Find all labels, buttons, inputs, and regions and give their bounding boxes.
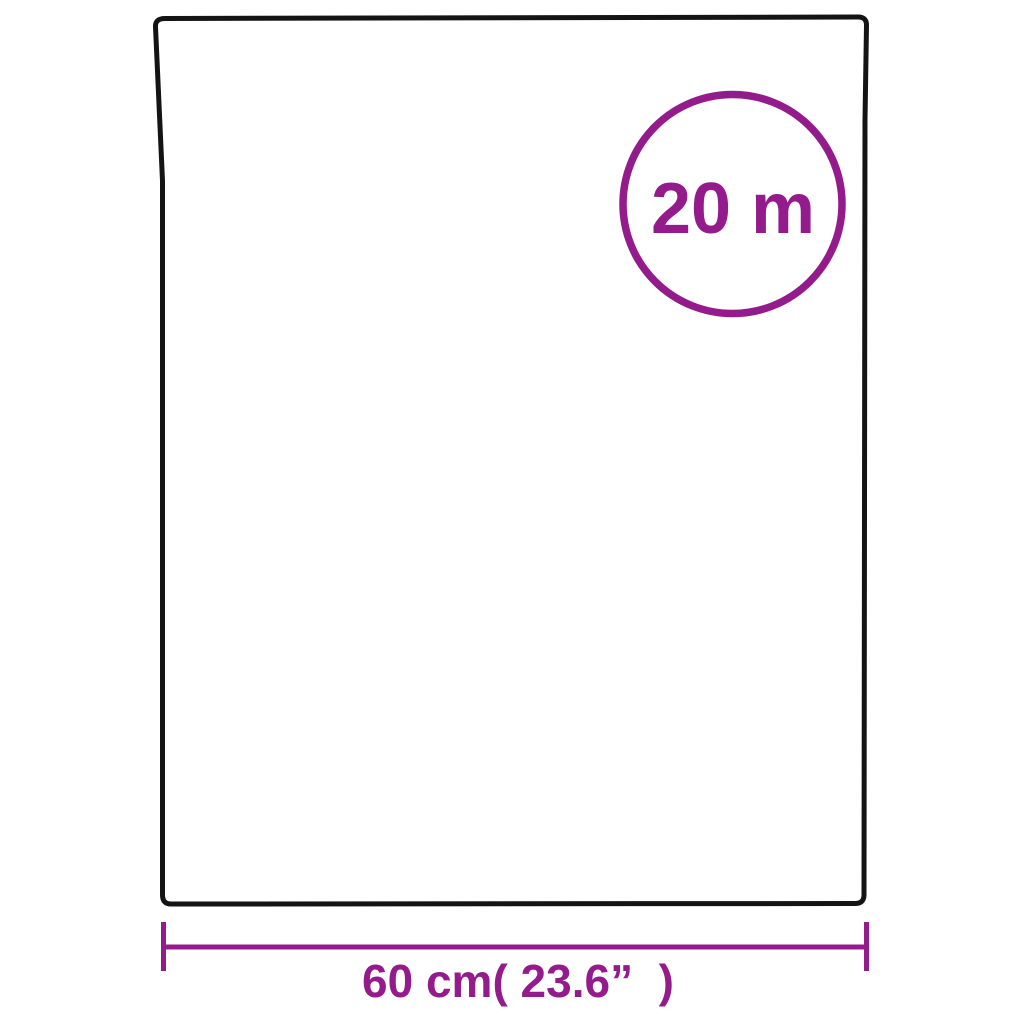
diagram-canvas: 20 m 60 cm( 23.6” ) <box>0 0 1024 1024</box>
width-dimension-label: 60 cm( 23.6” ) <box>362 955 674 1007</box>
product-dimension-diagram: 20 m 60 cm( 23.6” ) <box>0 0 1024 1024</box>
length-badge-text: 20 m <box>651 169 815 249</box>
